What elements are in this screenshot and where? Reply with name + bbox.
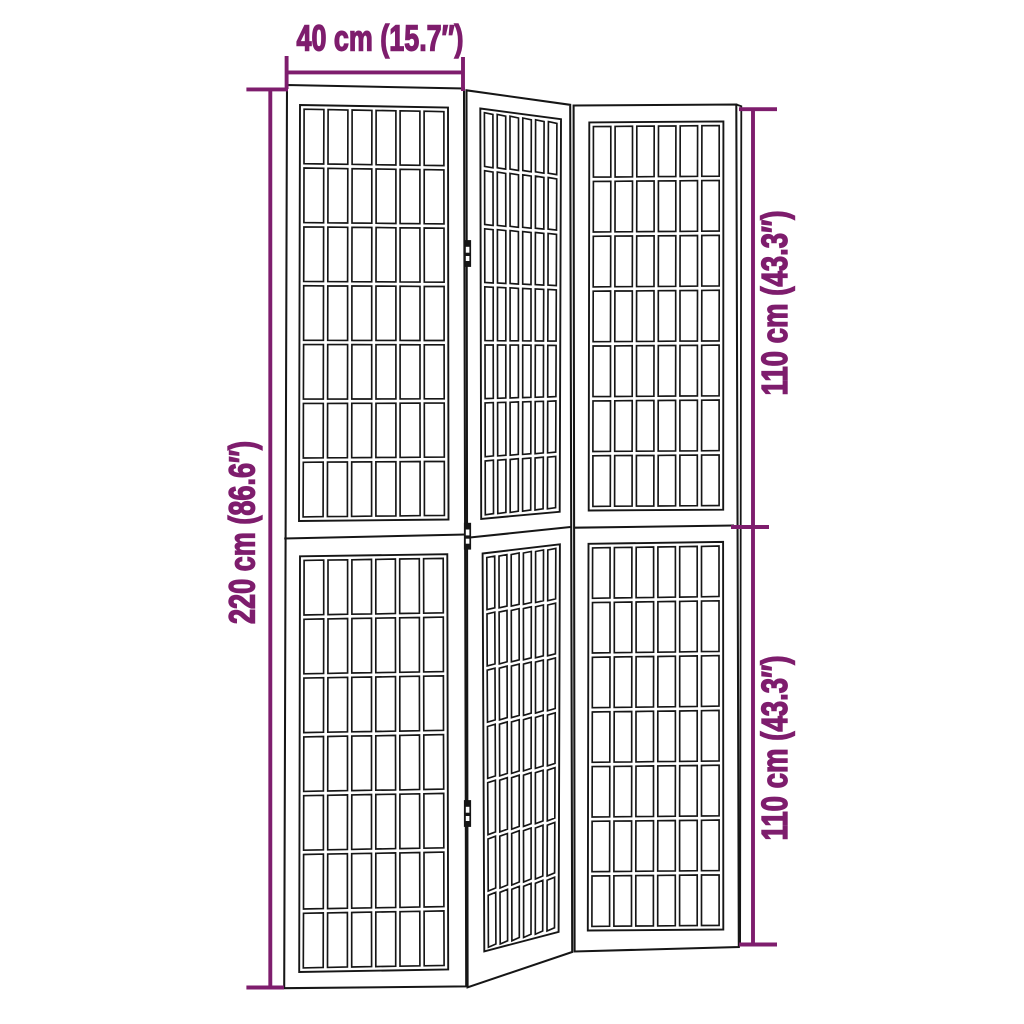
svg-text:220 cm (86.6″): 220 cm (86.6″) [221,441,262,624]
svg-text:40 cm (15.7″): 40 cm (15.7″) [297,17,464,58]
svg-text:110 cm (43.3″): 110 cm (43.3″) [754,656,795,841]
svg-text:110 cm (43.3″): 110 cm (43.3″) [754,211,795,396]
